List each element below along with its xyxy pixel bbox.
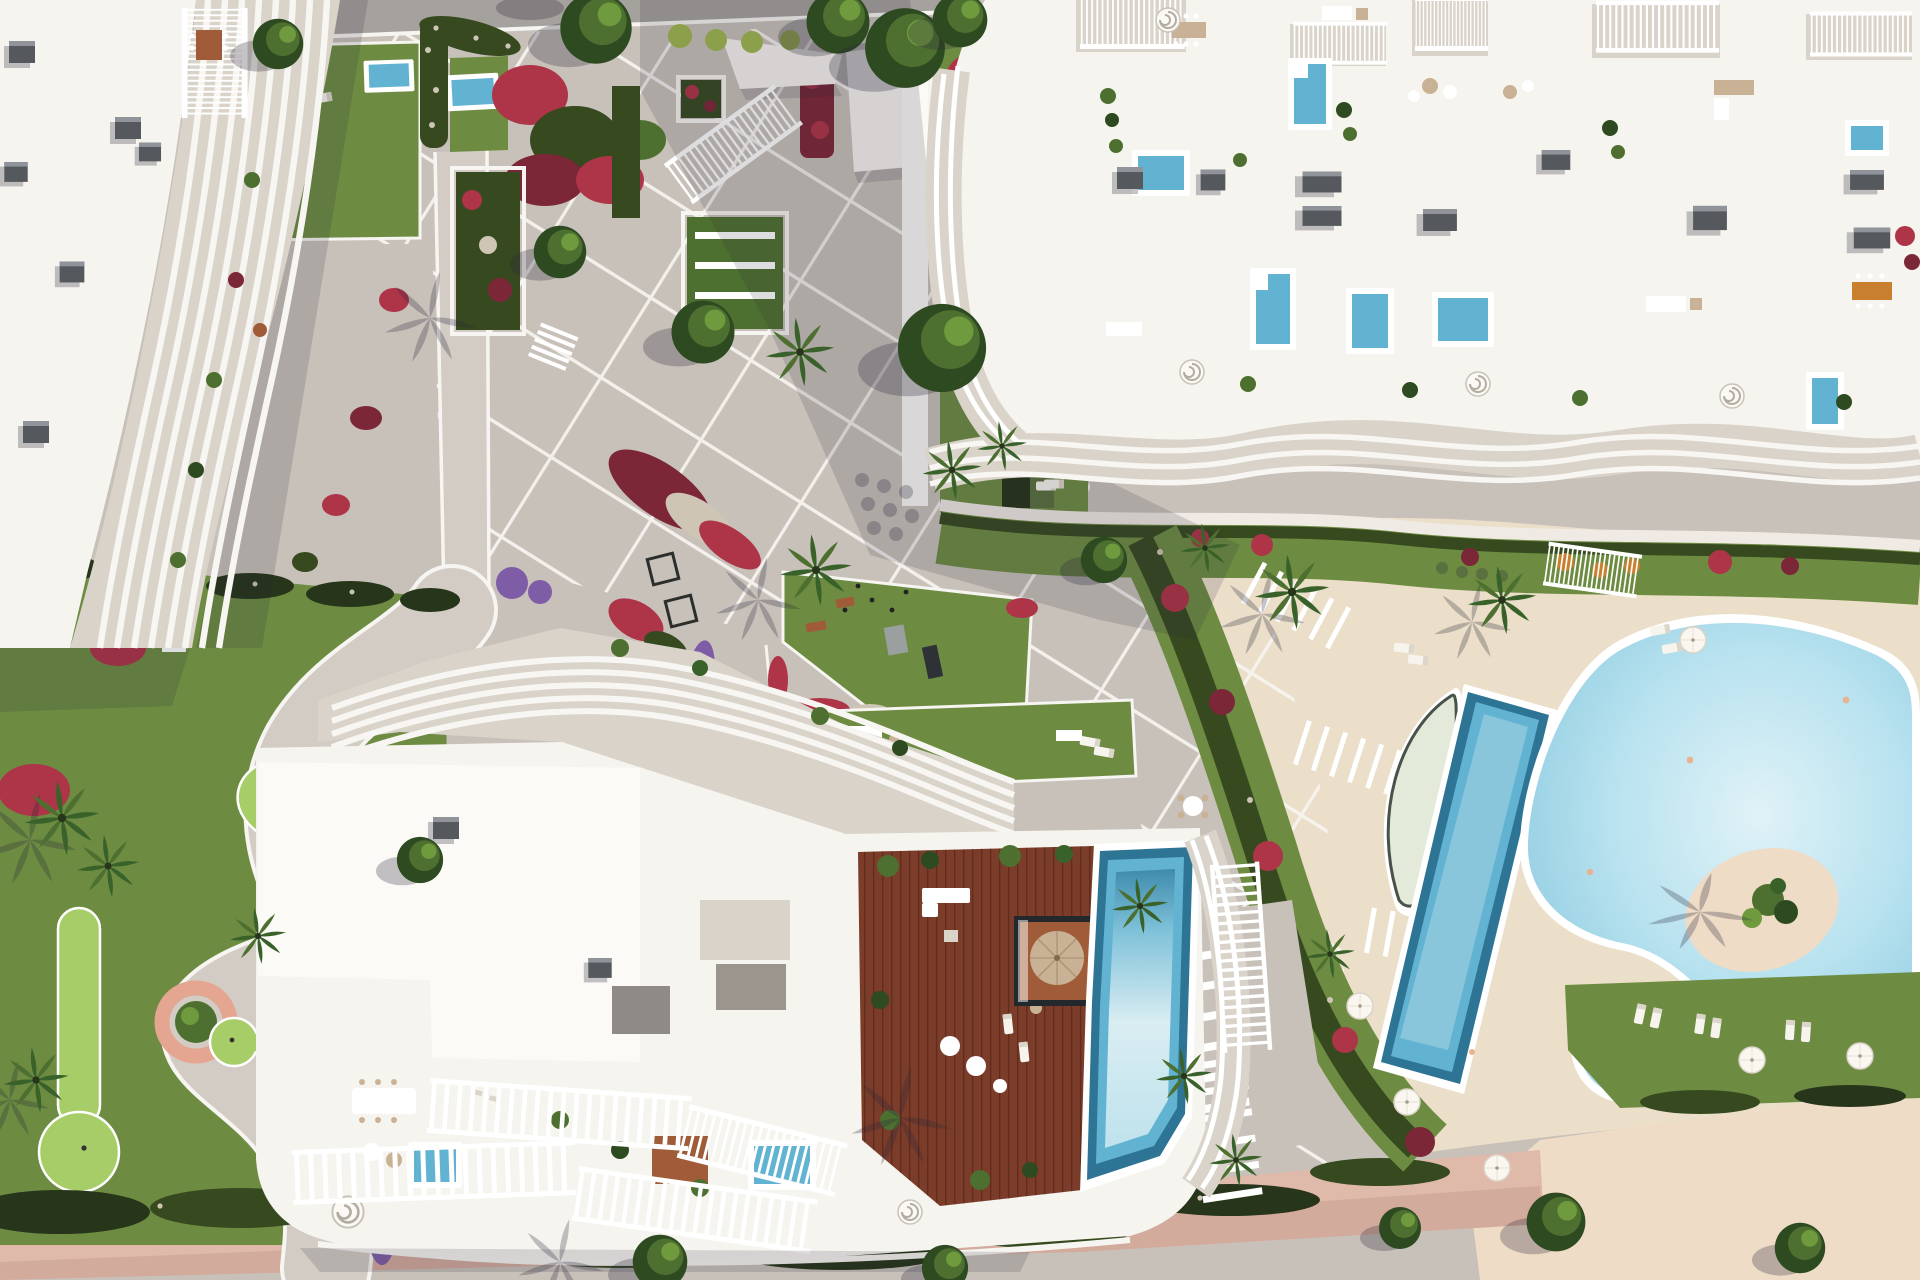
scene-svg [0, 0, 1920, 1280]
aerial-render [0, 0, 1920, 1280]
putting-green-strip [58, 908, 100, 1126]
lounger-lawn [1565, 972, 1920, 1114]
garden-plunge-pool-2 [451, 78, 494, 106]
roof-deck [858, 845, 1100, 1206]
garden-plunge-pool-1 [369, 63, 410, 87]
